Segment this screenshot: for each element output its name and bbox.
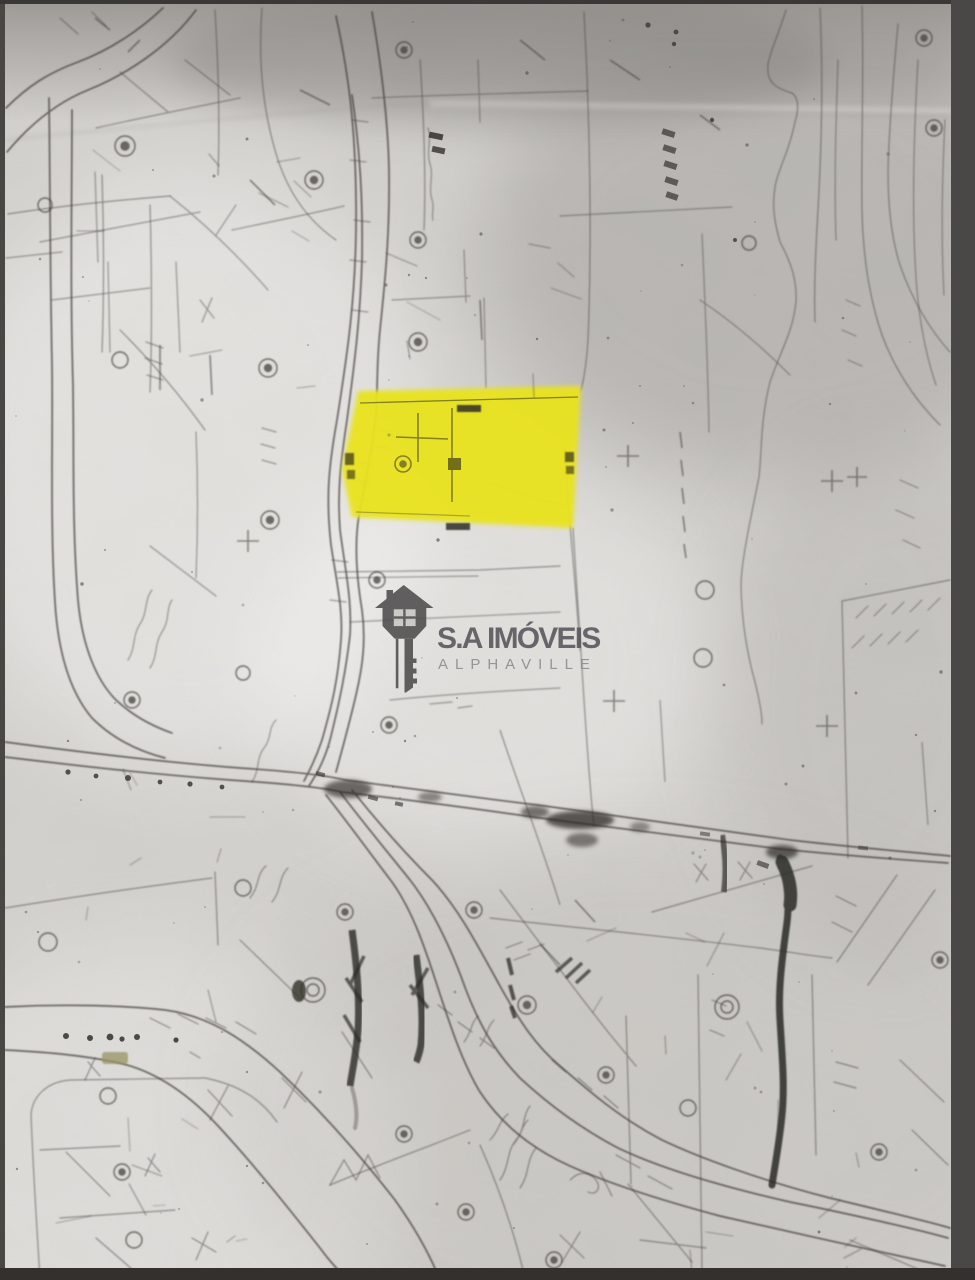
svg-text:S.A IMÓVEIS: S.A IMÓVEIS (437, 621, 600, 655)
svg-text:ALPHAVILLE: ALPHAVILLE (438, 656, 597, 673)
